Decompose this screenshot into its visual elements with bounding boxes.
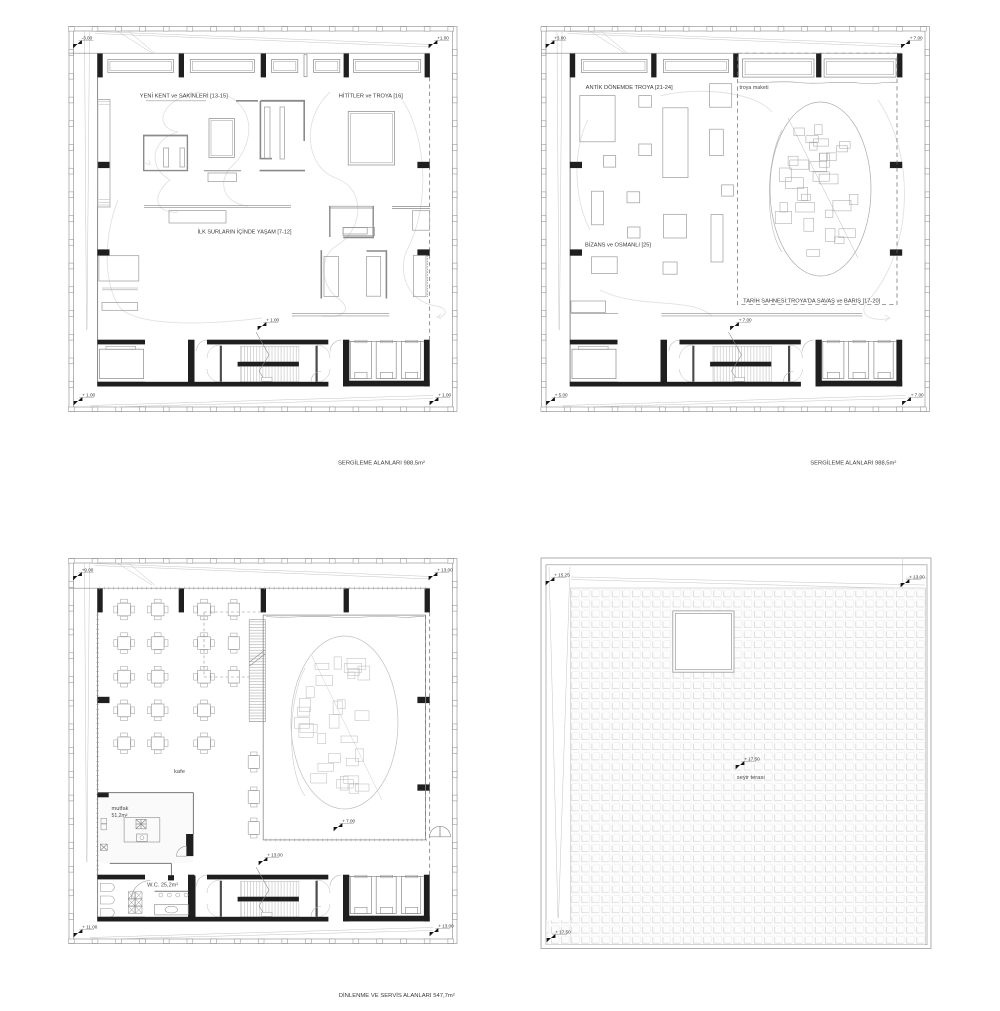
svg-text:YENİ KENT ve SAKİNLERİ [13-15: YENİ KENT ve SAKİNLERİ [13-15] bbox=[140, 92, 228, 99]
svg-text:ANTİK DÖNEMDE TROYA [21-24]: ANTİK DÖNEMDE TROYA [21-24] bbox=[586, 84, 673, 91]
svg-text:+ 13.00: + 13.00 bbox=[438, 923, 454, 928]
svg-text:SERGİLEME ALANLARI 988,5m²: SERGİLEME ALANLARI 988,5m² bbox=[810, 460, 896, 467]
svg-text:İLK SURLARIN İÇİNDE YAŞAM [7-1: İLK SURLARIN İÇİNDE YAŞAM [7-12] bbox=[198, 228, 292, 235]
svg-text:mutfak: mutfak bbox=[112, 806, 130, 812]
svg-text:+ 7.00: + 7.00 bbox=[739, 317, 752, 322]
svg-text:+ 17.50: + 17.50 bbox=[555, 929, 571, 934]
svg-text:+ 1.00: + 1.00 bbox=[82, 392, 95, 397]
svg-text:+ 15.25: + 15.25 bbox=[554, 572, 570, 577]
svg-text:W.C. 25,2m²: W.C. 25,2m² bbox=[147, 882, 178, 888]
svg-text:+ 7.00: + 7.00 bbox=[342, 818, 355, 823]
svg-text:BİZANS ve OSMANLI [25]: BİZANS ve OSMANLI [25] bbox=[585, 241, 651, 248]
svg-text:51,2m²: 51,2m² bbox=[112, 813, 128, 819]
svg-text:+9.00: +9.00 bbox=[82, 567, 94, 572]
svg-text:-3.00: -3.00 bbox=[82, 35, 93, 40]
svg-text:+1.00: +1.00 bbox=[437, 35, 449, 40]
svg-text:+ 1.00: + 1.00 bbox=[266, 317, 279, 322]
svg-text:+ 1.00: + 1.00 bbox=[438, 392, 451, 397]
svg-text:seyir terası: seyir terası bbox=[737, 775, 765, 781]
svg-text:HİTİTLER ve TROYA [16]: HİTİTLER ve TROYA [16] bbox=[339, 93, 403, 100]
svg-text:+ 7.00: + 7.00 bbox=[911, 392, 924, 397]
svg-text:+ 7.00: + 7.00 bbox=[910, 35, 923, 40]
svg-text:SERGİLEME ALANLARI 988,5m²: SERGİLEME ALANLARI 988,5m² bbox=[338, 460, 425, 467]
svg-text:TARİH SAHNESİ:TROYA'DA SAVAŞ v: TARİH SAHNESİ:TROYA'DA SAVAŞ ve BARIŞ [1… bbox=[743, 298, 880, 305]
svg-text:+ 5.00: + 5.00 bbox=[555, 392, 568, 397]
svg-text:+ 13.00: + 13.00 bbox=[267, 852, 283, 857]
svg-text:+ 11.00: + 11.00 bbox=[82, 924, 98, 929]
svg-text:kafe: kafe bbox=[174, 769, 185, 775]
svg-text:DİNLENME VE SERVİS ALANLARI 5: DİNLENME VE SERVİS ALANLARI 547,7m² bbox=[339, 992, 455, 999]
svg-text:+ 13.00: + 13.00 bbox=[437, 567, 453, 572]
svg-text:+ 13.00: + 13.00 bbox=[909, 574, 925, 579]
svg-text:+3.00: +3.00 bbox=[554, 35, 566, 40]
svg-text:troya maketi: troya maketi bbox=[740, 85, 769, 91]
svg-text:+ 17.50: + 17.50 bbox=[744, 756, 760, 761]
